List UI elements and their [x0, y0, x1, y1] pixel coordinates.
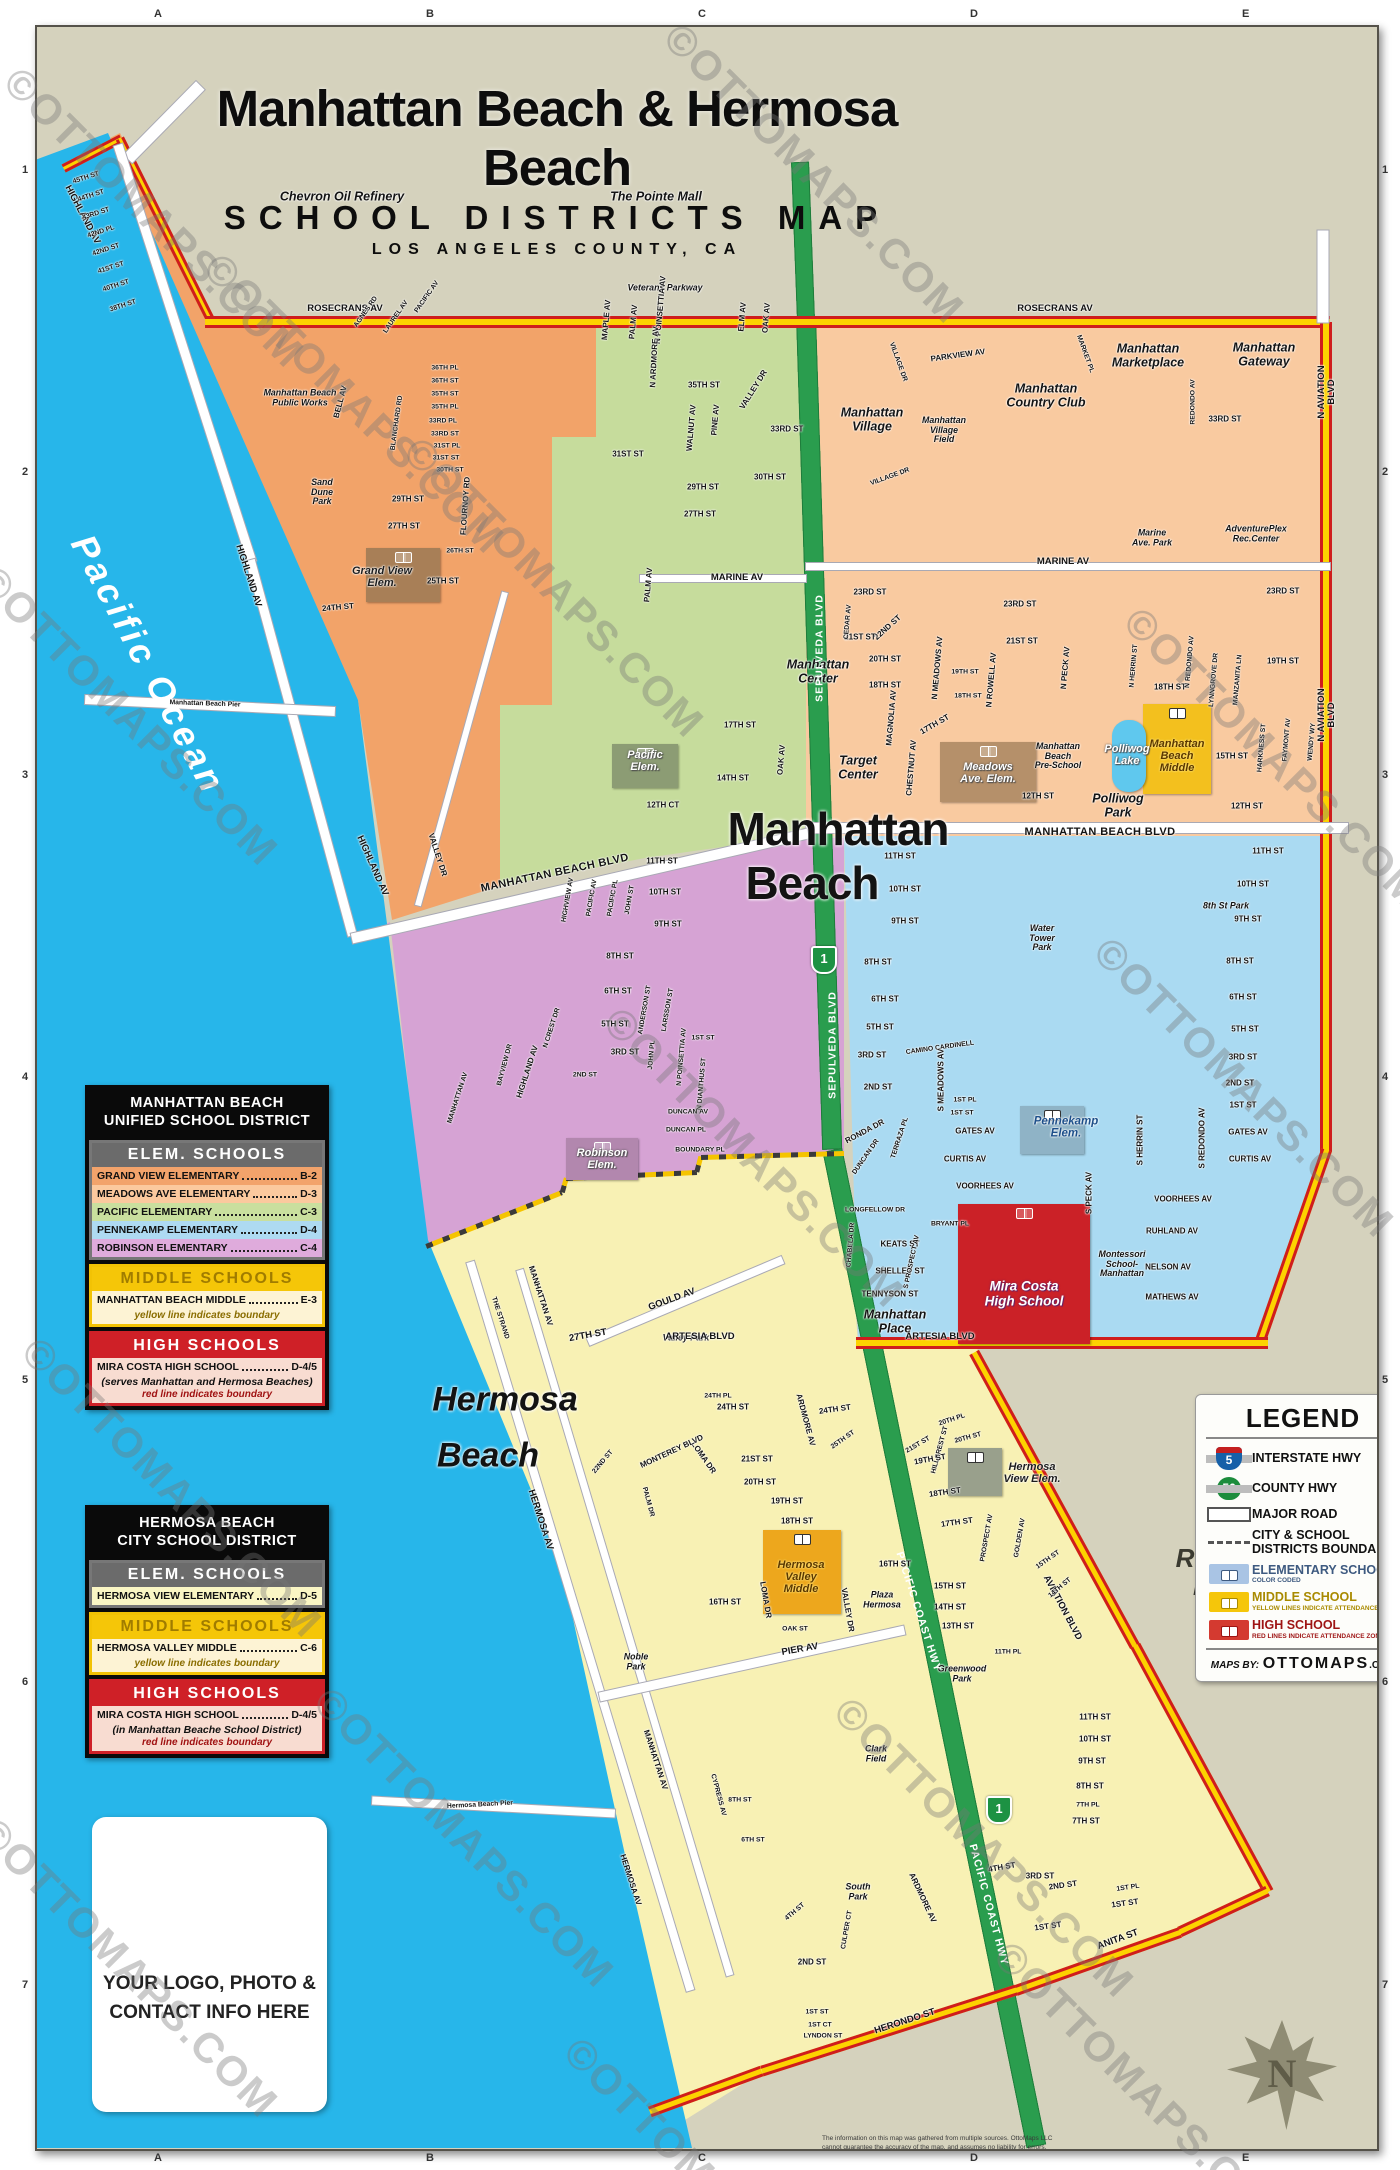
school-box-icon: [1209, 1592, 1249, 1612]
map-label: Greenwood Park: [938, 1665, 986, 1684]
map-label: RUHLAND AV: [1146, 1228, 1198, 1237]
map-label: 31ST ST: [433, 454, 460, 461]
map-subtitle: SCHOOL DISTRICTS MAP: [177, 199, 937, 237]
map-label: Hermosa View Elem.: [1003, 1462, 1060, 1486]
map-label: 23RD ST: [1004, 601, 1037, 610]
map-label: 3RD ST: [611, 1049, 639, 1058]
map-label: S PECK AV: [1086, 1172, 1095, 1214]
map-label: 18TH ST: [1154, 684, 1186, 693]
route-1-shield: 1: [811, 946, 837, 974]
legend-icon-school-elementary: [1206, 1564, 1252, 1584]
legend-item-label: COUNTY HWY: [1252, 1482, 1337, 1496]
map-label: Beach: [745, 859, 878, 909]
map-label: 12TH CT: [647, 802, 679, 811]
grid-number: 1: [1382, 164, 1388, 176]
school-name: PENNEKAMP ELEMENTARY: [97, 1224, 238, 1236]
map-label: BRYANT PL: [931, 1220, 969, 1227]
map-label: 25TH ST: [427, 578, 459, 587]
map-label: SEPULVEDA BLVD: [814, 594, 825, 702]
map-label: 1ST ST: [950, 1109, 973, 1116]
map-label: N AVIATION BLVD: [1317, 679, 1338, 752]
legend-item: 5INTERSTATE HWY: [1206, 1447, 1379, 1470]
map-label: 1ST CT: [808, 2021, 831, 2028]
map-label: AdventurePlex Rec.Center: [1225, 525, 1287, 544]
grid-letter: C: [698, 8, 706, 20]
district-box-title: HERMOSA BEACH CITY SCHOOL DISTRICT: [89, 1509, 325, 1556]
legend-item-text: ELEMENTARY SCHOOLCOLOR CODED: [1252, 1564, 1379, 1585]
grid-code: C-4: [300, 1242, 317, 1254]
map-label: TENNYSON ST: [862, 1291, 919, 1300]
map-label: 35TH ST: [688, 382, 720, 391]
legend-item-label: INTERSTATE HWY: [1252, 1452, 1361, 1466]
map-label: BOUNDARY PL: [675, 1146, 724, 1153]
map-label: 33RD PL: [429, 417, 457, 424]
map-label: 6TH ST: [741, 1836, 764, 1843]
logo-placeholder-text: YOUR LOGO, PHOTO & CONTACT INFO HERE: [103, 1970, 316, 2027]
legend-icon-boundary: [1206, 1541, 1252, 1544]
map-label: Clark Field: [865, 1745, 887, 1764]
legend-icon-school-high: [1206, 1620, 1252, 1640]
compass-rose: N: [1227, 2020, 1337, 2130]
map-label: 5TH ST: [1231, 1026, 1259, 1035]
map-label: 14TH ST: [934, 1604, 966, 1613]
map-label: Manhattan Country Club: [1006, 383, 1085, 410]
legend-item-label: MAJOR ROAD: [1252, 1508, 1337, 1522]
school-row-note: (serves Manhattan and Hermosa Beaches): [92, 1376, 322, 1388]
legend-item-label: ELEMENTARY SCHOOL: [1252, 1564, 1379, 1578]
map-label: Manhattan Beach Middle: [1150, 739, 1205, 775]
grid-letter: E: [1242, 8, 1249, 20]
district-section-middle: MIDDLE SCHOOLSMANHATTAN BEACH MIDDLEE-3y…: [89, 1264, 325, 1327]
school-book-icon: [980, 746, 997, 757]
map-label: 19TH ST: [951, 668, 978, 675]
map-label: LONGFELLOW DR: [845, 1206, 905, 1213]
legend-icon-interstate: 5: [1206, 1447, 1252, 1470]
map-label: 29TH ST: [687, 484, 719, 493]
school-book-icon: [794, 1534, 811, 1545]
map-label: 23RD ST: [854, 589, 887, 598]
school-name: ROBINSON ELEMENTARY: [97, 1242, 228, 1254]
grid-letter: B: [426, 2152, 434, 2164]
district-section-header: MIDDLE SCHOOLS: [92, 1615, 322, 1639]
route-1-shield: 1: [986, 1796, 1012, 1824]
school-book-icon: [967, 1452, 984, 1463]
map-label: 9TH ST: [891, 918, 919, 927]
map-label: PACIFIC AV: [413, 280, 440, 315]
map-label: ROSECRANS AV: [1017, 304, 1092, 314]
legend-item: 56COUNTY HWY: [1206, 1477, 1379, 1500]
map-label: Beach: [437, 1438, 539, 1475]
school-row: MANHATTAN BEACH MIDDLEE-3: [92, 1291, 322, 1309]
school-row: GRAND VIEW ELEMENTARYB-2: [92, 1167, 322, 1185]
map-label: Hermosa Valley Middle: [777, 1560, 824, 1596]
map-label: Manhattan Beach Pre-School: [1035, 742, 1081, 771]
boundary-note: red line indicates boundary: [92, 1736, 322, 1751]
grid-number: 7: [1382, 1979, 1388, 1991]
grid-letter: C: [698, 2152, 706, 2164]
map-label: Manhattan Beach Public Works: [264, 389, 337, 408]
grid-number: 7: [22, 1979, 28, 1991]
leader-dots: [257, 1598, 297, 1600]
district-section-high: HIGH SCHOOLSMIRA COSTA HIGH SCHOOLD-4/5(…: [89, 1331, 325, 1406]
brand-suffix: .COM: [1369, 1660, 1379, 1671]
map-label: S REDONDO AV: [1199, 1108, 1208, 1169]
map-label: 16TH ST: [879, 1561, 911, 1570]
legend: LEGEND 5INTERSTATE HWY56COUNTY HWYMAJOR …: [1195, 1394, 1379, 1682]
map-label: 11TH ST: [1252, 848, 1284, 857]
school-row: PACIFIC ELEMENTARYC-3: [92, 1203, 322, 1221]
map-label: 1ST ST: [805, 2008, 828, 2015]
map-label: 8th St Park: [1203, 901, 1249, 911]
school-name: HERMOSA VALLEY MIDDLE: [97, 1642, 237, 1654]
map-label: 2ND ST: [798, 1959, 826, 1968]
map-label: 17TH ST: [724, 722, 756, 731]
map-label: 10TH ST: [1237, 881, 1269, 890]
map-label: 14TH ST: [717, 775, 749, 784]
map-label: SEPULVEDA BLVD: [827, 991, 838, 1099]
leader-dots: [240, 1650, 297, 1652]
map-label: 11TH ST: [884, 853, 916, 862]
map-label: 2ND ST: [864, 1084, 892, 1093]
grid-code: C-6: [300, 1642, 317, 1654]
leader-dots: [242, 1369, 288, 1371]
map-label: DUNCAN PL: [666, 1126, 706, 1133]
school-row: MIRA COSTA HIGH SCHOOLD-4/5: [92, 1706, 322, 1724]
map-label: CURTIS AV: [944, 1156, 986, 1165]
map-sheet: 11Chevron Oil RefineryThe Pointe MallROS…: [35, 25, 1379, 2151]
legend-item-text: CITY & SCHOOL DISTRICTS BOUNDARY: [1252, 1529, 1379, 1557]
grid-number: 4: [22, 1071, 28, 1083]
school-row: HERMOSA VALLEY MIDDLEC-6: [92, 1639, 322, 1657]
legend-footer: MAPS BY: OTTOMAPS.COM: [1206, 1648, 1379, 1673]
leader-dots: [231, 1250, 297, 1252]
district-box: HERMOSA BEACH CITY SCHOOL DISTRICTELEM. …: [85, 1505, 329, 1758]
map-label: Sand Dune Park: [311, 478, 333, 507]
map-label: 5TH ST: [866, 1024, 894, 1033]
district-section-middle: MIDDLE SCHOOLSHERMOSA VALLEY MIDDLEC-6ye…: [89, 1612, 325, 1675]
legend-item-label: CITY & SCHOOL DISTRICTS BOUNDARY: [1252, 1529, 1379, 1557]
district-box: MANHATTAN BEACH UNIFIED SCHOOL DISTRICTE…: [85, 1085, 329, 1410]
school-book-icon: [395, 552, 412, 563]
map-label: MARINE AV: [1037, 557, 1089, 567]
map-label: 19TH ST: [1267, 658, 1299, 667]
book-icon: [1221, 1570, 1238, 1581]
map-label: 2ND ST: [573, 1071, 597, 1078]
legend-item: ELEMENTARY SCHOOLCOLOR CODED: [1206, 1564, 1379, 1585]
map-label: 1ST PL: [953, 1096, 976, 1103]
map-label: 18TH ST: [781, 1518, 813, 1527]
grid-number: 6: [22, 1676, 28, 1688]
map-label: MARINE AV: [711, 573, 763, 583]
map-label: 5TH ST: [601, 1021, 629, 1030]
legend-item-text: COUNTY HWY: [1252, 1482, 1337, 1496]
map-label: 29TH ST: [392, 496, 424, 505]
boundary-note: red line indicates boundary: [92, 1388, 322, 1403]
map-label: 2ND ST: [1226, 1080, 1254, 1089]
map-label: 19TH ST: [771, 1498, 803, 1507]
disclaimer: The information on this map was gathered…: [822, 2135, 1057, 2151]
book-icon: [1221, 1626, 1238, 1637]
map-label: 20TH ST: [744, 1479, 776, 1488]
district-section-header: ELEM. SCHOOLS: [92, 1563, 322, 1587]
brand-name: OTTOMAPS: [1263, 1655, 1369, 1672]
map-label: S MEADOWS AV: [938, 1049, 947, 1112]
map-label: 12TH ST: [1231, 803, 1263, 812]
map-label: Manhattan: [728, 805, 949, 855]
map-label: 10TH ST: [1079, 1736, 1111, 1745]
map-label: South Park: [846, 1883, 871, 1902]
map-label: DUNCAN AV: [668, 1108, 708, 1115]
school-name: HERMOSA VIEW ELEMENTARY: [97, 1590, 254, 1602]
leader-dots: [242, 1178, 297, 1180]
logo-placeholder: YOUR LOGO, PHOTO & CONTACT INFO HERE: [92, 1817, 327, 2112]
map-label: 7TH ST: [1072, 1818, 1100, 1827]
map-label: 30TH ST: [754, 474, 786, 483]
map-label: Robinson Elem.: [577, 1148, 628, 1172]
district-box-title: MANHATTAN BEACH UNIFIED SCHOOL DISTRICT: [89, 1089, 325, 1136]
map-label: 23RD ST: [1267, 588, 1300, 597]
leader-dots: [242, 1717, 288, 1719]
map-label: 35TH ST: [431, 390, 458, 397]
school-row: MIRA COSTA HIGH SCHOOLD-4/5: [92, 1358, 322, 1376]
map-label: VOORHEES AV: [1154, 1196, 1212, 1205]
map-label: 12TH ST: [1022, 793, 1054, 802]
map-label: SHELLEY ST: [875, 1268, 924, 1277]
school-book-icon: [1016, 1208, 1033, 1219]
leader-dots: [241, 1232, 297, 1234]
map-county: LOS ANGELES COUNTY, CA: [177, 241, 937, 259]
legend-item-label: HIGH SCHOOL: [1252, 1619, 1379, 1633]
grid-code: D-4: [300, 1224, 317, 1236]
map-label: MANHATTAN BEACH BLVD: [1025, 827, 1176, 839]
map-label: GATES AV: [1228, 1129, 1267, 1138]
map-label: Pacific Elem.: [627, 750, 662, 774]
maps-by-label: MAPS BY:: [1211, 1660, 1259, 1671]
map-label: 24TH PL: [704, 1392, 731, 1399]
map-label: Manhattan Gateway: [1233, 342, 1296, 369]
grid-code: D-3: [300, 1188, 317, 1200]
book-icon: [1221, 1598, 1238, 1609]
legend-item-sub: YELLOW LINES INDICATE ATTENDANCE ZONE: [1252, 1605, 1379, 1612]
map-label: 11TH PL: [995, 1648, 1022, 1655]
map-label: 24TH ST: [717, 1404, 749, 1413]
map-label: LYNDON ST: [804, 2032, 843, 2039]
legend-item-text: INTERSTATE HWY: [1252, 1452, 1361, 1466]
map-label: 21ST ST: [1006, 638, 1038, 647]
school-row: PENNEKAMP ELEMENTARYD-4: [92, 1221, 322, 1239]
grid-number: 1: [22, 164, 28, 176]
map-label: Hermosa: [432, 1382, 578, 1419]
map-label: 3RD ST: [1026, 1873, 1054, 1882]
legend-item: HIGH SCHOOLRED LINES INDICATE ATTENDANCE…: [1206, 1619, 1379, 1640]
map-label: MATHEWS AV: [1145, 1294, 1198, 1303]
grid-number: 5: [1382, 1374, 1388, 1386]
map-label: 27TH ST: [388, 523, 420, 532]
map-label: Montessori School- Manhattan: [1099, 1250, 1146, 1279]
district-section-elem: ELEM. SCHOOLSHERMOSA VIEW ELEMENTARYD-5: [89, 1560, 325, 1608]
map-label: Noble Park: [624, 1653, 648, 1672]
school-name: MANHATTAN BEACH MIDDLE: [97, 1294, 246, 1306]
map-label: 33RD ST: [771, 426, 804, 435]
school-name: MIRA COSTA HIGH SCHOOL: [97, 1709, 239, 1721]
school-name: PACIFIC ELEMENTARY: [97, 1206, 212, 1218]
map-label: GATES AV: [955, 1128, 994, 1137]
legend-item: MIDDLE SCHOOLYELLOW LINES INDICATE ATTEN…: [1206, 1591, 1379, 1612]
map-label: 9TH ST: [1234, 916, 1262, 925]
interstate-shield-icon: 5: [1216, 1447, 1242, 1470]
map-label: 31ST ST: [612, 451, 644, 460]
map-label: 6TH ST: [1229, 994, 1257, 1003]
grid-letter: B: [426, 8, 434, 20]
map-label: 8TH ST: [1076, 1783, 1104, 1792]
legend-item: CITY & SCHOOL DISTRICTS BOUNDARY: [1206, 1529, 1379, 1557]
boundary-note: yellow line indicates boundary: [92, 1657, 322, 1672]
major-road-icon: [1207, 1507, 1251, 1522]
school-row: ROBINSON ELEMENTARYC-4: [92, 1239, 322, 1257]
grid-number: 4: [1382, 1071, 1388, 1083]
leader-dots: [253, 1196, 297, 1198]
map-label: 18TH ST: [869, 682, 901, 691]
map-label: 8TH ST: [864, 959, 892, 968]
map-label: CURTIS AV: [1229, 1156, 1271, 1165]
map-label: Meadows Ave. Elem.: [960, 762, 1016, 786]
map-label: 26TH ST: [446, 547, 473, 554]
map-label: NELSON AV: [1145, 1264, 1191, 1273]
map-label: 21ST ST: [741, 1456, 773, 1465]
map-label: 8TH ST: [728, 1796, 751, 1803]
map-label: 1ST ST: [1229, 1102, 1256, 1111]
map-title: Manhattan Beach & Hermosa Beach: [177, 79, 937, 197]
map-label: 36TH PL: [431, 364, 458, 371]
map-label: VOORHEES AV: [956, 1183, 1014, 1192]
map-label: 11TH ST: [646, 858, 678, 867]
map-label: 3RD ST: [858, 1052, 886, 1061]
school-name: GRAND VIEW ELEMENTARY: [97, 1170, 239, 1182]
map-label: Water Tower Park: [1029, 924, 1055, 953]
map-label: 10TH ST: [889, 886, 921, 895]
map-label: Grand View Elem.: [352, 566, 412, 590]
school-row: MEADOWS AVE ELEMENTARYD-3: [92, 1185, 322, 1203]
map-label: OAK ST: [782, 1625, 808, 1632]
mira-costa-high-school: [958, 1204, 1090, 1344]
district-section-high: HIGH SCHOOLSMIRA COSTA HIGH SCHOOLD-4/5(…: [89, 1679, 325, 1754]
district-section-header: ELEM. SCHOOLS: [92, 1143, 322, 1167]
map-label: Manhattan Village Field: [922, 416, 966, 445]
map-label: S HERRIN ST: [1137, 1115, 1146, 1166]
school-name: MIRA COSTA HIGH SCHOOL: [97, 1361, 239, 1373]
grid-number: 3: [1382, 769, 1388, 781]
map-label: ARTESIA BLVD: [905, 1332, 974, 1342]
grid-letter: E: [1242, 2152, 1249, 2164]
school-row-note: (in Manhattan Beache School District): [92, 1724, 322, 1736]
map-label: 33RD ST: [1209, 416, 1242, 425]
map-label: REDONDO AV: [1189, 379, 1196, 424]
map-label: 9TH ST: [654, 921, 682, 930]
boundary-note: yellow line indicates boundary: [92, 1309, 322, 1324]
map-label: Pennekamp Elem.: [1034, 1116, 1099, 1141]
road-stub: [1206, 1485, 1252, 1493]
map-label: Plaza Hermosa: [863, 1591, 901, 1610]
school-row: HERMOSA VIEW ELEMENTARYD-5: [92, 1587, 322, 1605]
map-label: Manhattan Village: [841, 407, 904, 434]
map-label: 10TH ST: [649, 889, 681, 898]
grid-number: 3: [22, 769, 28, 781]
map-label: 6TH ST: [871, 996, 899, 1005]
map-label: 16TH ST: [709, 1599, 741, 1608]
map-label: Polliwog Park: [1092, 793, 1143, 820]
map-label: 18TH ST: [954, 692, 981, 699]
map-label: Polliwog Lake: [1104, 744, 1149, 768]
map-label: Marine Ave. Park: [1132, 529, 1172, 548]
grid-number: 6: [1382, 1676, 1388, 1688]
legend-item-label: MIDDLE SCHOOL: [1252, 1591, 1379, 1605]
legend-item-text: HIGH SCHOOLRED LINES INDICATE ATTENDANCE…: [1252, 1619, 1379, 1640]
boundary-dash-icon: [1208, 1541, 1250, 1544]
district-section-header: MIDDLE SCHOOLS: [92, 1267, 322, 1291]
legend-items: 5INTERSTATE HWY56COUNTY HWYMAJOR ROADCIT…: [1206, 1447, 1379, 1640]
map-label: 1ST ST: [691, 1034, 714, 1041]
map-label: 35TH PL: [431, 403, 458, 410]
map-label: 33RD ST: [431, 430, 459, 437]
grid-number: 2: [22, 466, 28, 478]
grid-number: 5: [22, 1374, 28, 1386]
title-block: Manhattan Beach & Hermosa Beach SCHOOL D…: [177, 79, 937, 259]
map-label: Target Center: [838, 755, 878, 782]
map-label: 9TH ST: [1078, 1758, 1106, 1767]
map-label: 27TH ST: [684, 511, 716, 520]
map-page: 11Chevron Oil RefineryThe Pointe MallROS…: [0, 0, 1400, 2170]
legend-item-text: MIDDLE SCHOOLYELLOW LINES INDICATE ATTEN…: [1252, 1591, 1379, 1612]
leader-dots: [215, 1214, 297, 1216]
map-label: 11TH ST: [1079, 1714, 1111, 1723]
map-label: N AVIATION BLVD: [1317, 356, 1338, 429]
map-label: 3RD ST: [1229, 1054, 1257, 1063]
map-label: 20TH ST: [869, 656, 901, 665]
district-section-header: HIGH SCHOOLS: [92, 1334, 322, 1358]
grid-code: C-3: [300, 1206, 317, 1218]
grid-code: D-4/5: [291, 1709, 317, 1721]
map-label: 15TH ST: [934, 1583, 966, 1592]
map-label: Mira Costa High School: [985, 1279, 1064, 1308]
road-segment: [1318, 230, 1329, 322]
grid-code: D-4/5: [291, 1361, 317, 1373]
map-label: 8TH ST: [606, 953, 634, 962]
school-book-icon: [1169, 708, 1186, 719]
compass-north-label: N: [1227, 2050, 1337, 2097]
map-label: 36TH ST: [431, 377, 458, 384]
district-section-elem: ELEM. SCHOOLSGRAND VIEW ELEMENTARYB-2MEA…: [89, 1140, 325, 1260]
grid-code: B-2: [300, 1170, 317, 1182]
map-label: 31ST PL: [434, 442, 461, 449]
leader-dots: [249, 1302, 298, 1304]
school-name: MEADOWS AVE ELEMENTARY: [97, 1188, 250, 1200]
grid-letter: A: [154, 2152, 162, 2164]
legend-icon-road: [1206, 1507, 1252, 1522]
legend-item-text: MAJOR ROAD: [1252, 1508, 1337, 1522]
map-label: Manhattan Marketplace: [1112, 343, 1184, 370]
grid-number: 2: [1382, 466, 1388, 478]
map-label: 7TH PL: [1076, 1801, 1099, 1808]
grid-code: E-3: [301, 1294, 317, 1306]
map-label: 6TH ST: [604, 988, 632, 997]
school-box-icon: [1209, 1564, 1249, 1584]
grid-code: D-5: [300, 1590, 317, 1602]
map-label: ARTESIA BLVD: [665, 1332, 734, 1342]
map-label: 15TH ST: [1216, 753, 1248, 762]
legend-item: MAJOR ROAD: [1206, 1507, 1379, 1522]
map-label: 13TH ST: [942, 1623, 974, 1632]
map-label: 8TH ST: [1226, 958, 1254, 967]
